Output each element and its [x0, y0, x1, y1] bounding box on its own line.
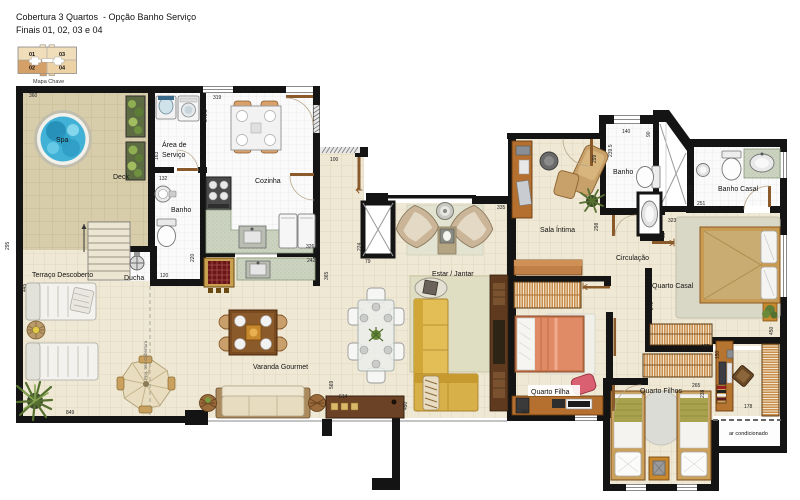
svg-text:140: 140: [622, 129, 631, 135]
svg-text:569: 569: [329, 380, 335, 389]
svg-text:849: 849: [66, 410, 75, 416]
svg-text:03: 03: [59, 52, 65, 58]
svg-text:445: 445: [22, 283, 28, 292]
svg-text:Banho Casal: Banho Casal: [718, 186, 759, 193]
svg-text:Quarto Filhos: Quarto Filhos: [640, 388, 683, 395]
svg-text:Deck: Deck: [113, 174, 129, 181]
svg-text:450: 450: [769, 326, 775, 335]
svg-text:Serviço: Serviço: [162, 152, 185, 159]
svg-text:238: 238: [700, 389, 706, 398]
svg-text:Quarto Filha: Quarto Filha: [531, 389, 570, 396]
svg-text:239.5: 239.5: [608, 144, 614, 157]
svg-text:251: 251: [697, 201, 706, 207]
svg-text:185: 185: [701, 344, 710, 350]
svg-text:514: 514: [339, 394, 348, 400]
svg-text:Banho: Banho: [613, 169, 633, 176]
svg-text:100: 100: [330, 157, 339, 163]
svg-text:79: 79: [365, 259, 371, 265]
svg-text:299: 299: [592, 154, 598, 163]
svg-text:Proj. teto Cobertura: Proj. teto Cobertura: [143, 340, 148, 380]
svg-text:490: 490: [403, 401, 409, 410]
svg-text:Spa: Spa: [56, 137, 69, 144]
svg-text:Banho: Banho: [171, 207, 191, 214]
svg-text:326.5: 326.5: [306, 244, 319, 250]
svg-text:04: 04: [59, 66, 66, 72]
svg-text:224: 224: [357, 242, 363, 251]
svg-text:298: 298: [594, 222, 600, 231]
svg-text:132: 132: [159, 176, 168, 182]
svg-text:90: 90: [646, 131, 652, 137]
svg-text:295: 295: [5, 241, 11, 250]
svg-text:02: 02: [29, 66, 35, 72]
svg-text:Estar / Jantar: Estar / Jantar: [432, 271, 474, 278]
svg-text:Cobertura 3 Quartos - Opção B: Cobertura 3 Quartos - Opção Banho Serviç…: [16, 12, 196, 22]
svg-text:178: 178: [744, 404, 753, 410]
svg-text:Mapa Chave: Mapa Chave: [33, 79, 64, 85]
svg-text:60: 60: [661, 232, 667, 238]
svg-text:323: 323: [668, 218, 677, 224]
svg-text:240: 240: [649, 301, 655, 310]
svg-text:365: 365: [324, 271, 330, 280]
svg-text:Terraço Descoberto: Terraço Descoberto: [32, 272, 93, 279]
svg-text:Quarto Casal: Quarto Casal: [652, 283, 694, 290]
svg-text:Ducha: Ducha: [124, 275, 144, 282]
svg-text:Varanda Gourmet: Varanda Gourmet: [253, 364, 308, 371]
svg-text:Área de: Área de: [162, 140, 187, 149]
svg-text:242: 242: [307, 258, 316, 264]
svg-text:ar condicionado: ar condicionado: [729, 431, 768, 437]
svg-text:120: 120: [688, 184, 694, 193]
svg-text:150: 150: [715, 350, 721, 359]
svg-text:120: 120: [160, 273, 169, 279]
svg-text:260: 260: [521, 410, 530, 416]
svg-text:265: 265: [692, 383, 701, 389]
svg-text:Circulação: Circulação: [616, 255, 649, 262]
svg-text:01: 01: [29, 52, 35, 58]
svg-text:360: 360: [29, 93, 38, 99]
svg-text:319: 319: [213, 95, 222, 101]
svg-text:335: 335: [497, 205, 506, 211]
svg-text:Cozinha: Cozinha: [255, 178, 281, 185]
svg-text:Finais 01, 02, 03 e 04: Finais 01, 02, 03 e 04: [16, 25, 103, 35]
svg-text:Sala Íntima: Sala Íntima: [540, 225, 575, 234]
svg-text:163: 163: [154, 151, 160, 160]
svg-text:349.5: 349.5: [203, 109, 209, 122]
svg-text:220: 220: [190, 253, 196, 262]
